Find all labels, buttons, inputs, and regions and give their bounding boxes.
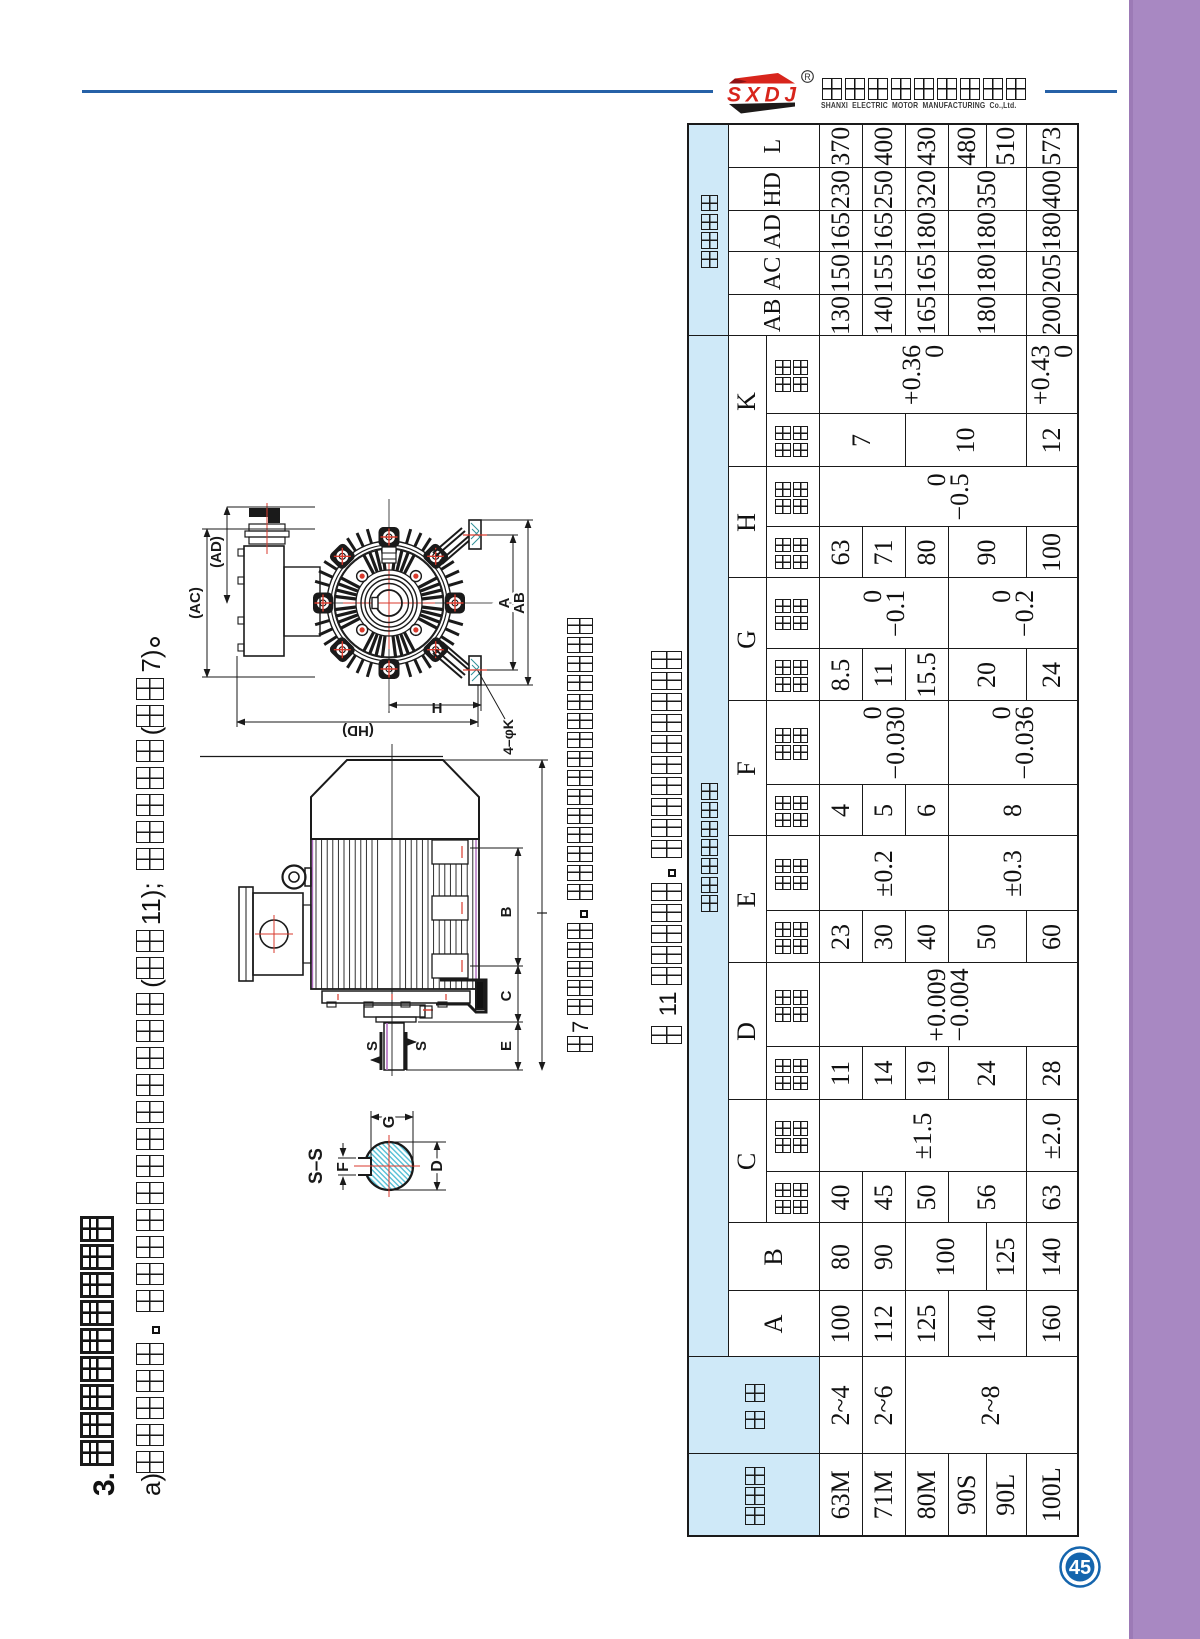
svg-text:S: S: [364, 1041, 381, 1051]
svg-text:B: B: [498, 906, 515, 917]
svg-text:E: E: [498, 1041, 515, 1051]
svg-text:S: S: [413, 1041, 430, 1051]
svg-text:G: G: [381, 1116, 398, 1128]
svg-text:F: F: [335, 1162, 352, 1172]
svg-text:(AC): (AC): [187, 587, 204, 619]
svg-text:(HD): (HD): [342, 722, 374, 739]
svg-text:D: D: [429, 1160, 446, 1172]
svg-text:S–S: S–S: [306, 1148, 327, 1184]
svg-text:AB: AB: [511, 592, 528, 614]
svg-text:C: C: [498, 990, 515, 1001]
svg-text:(AD): (AD): [208, 536, 225, 568]
svg-text:4–φK: 4–φK: [500, 719, 516, 755]
svg-text:H: H: [432, 700, 443, 717]
